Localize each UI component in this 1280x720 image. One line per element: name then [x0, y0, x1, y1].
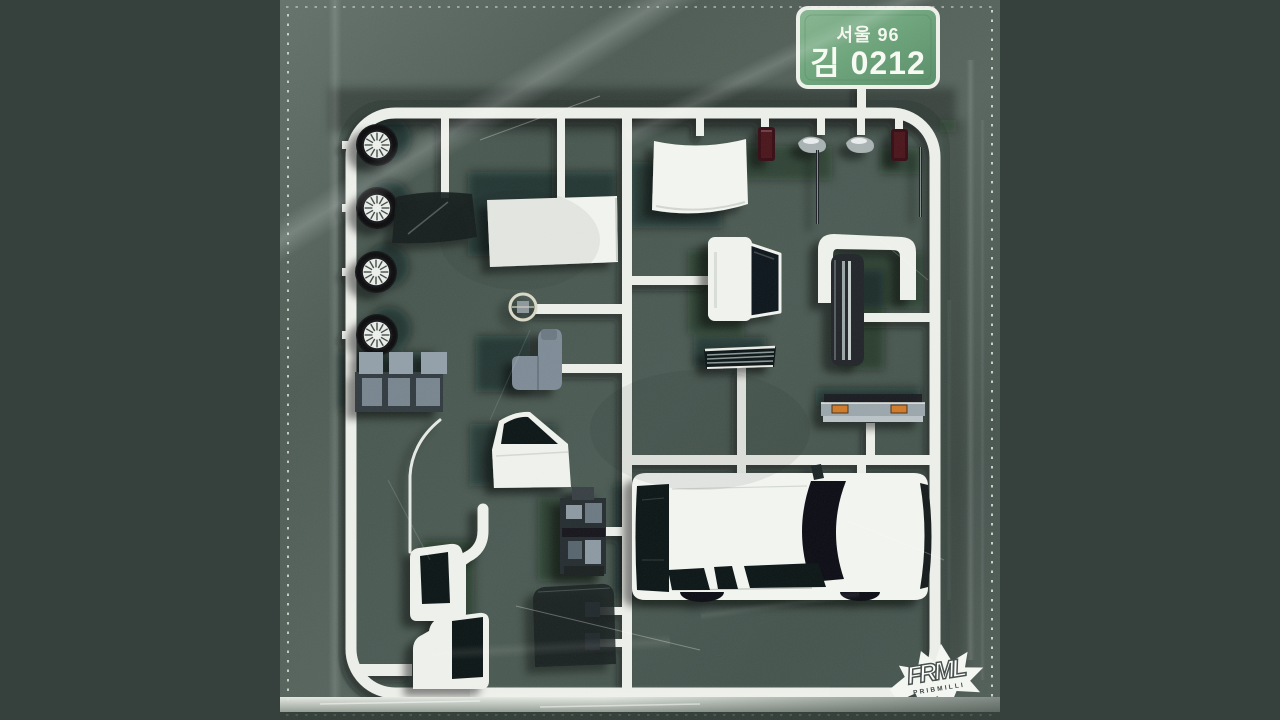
album-art-graphic: 서울 96 김 0212 FRML PRIBMILLI	[280, 0, 1000, 720]
grain-overlay	[280, 0, 1000, 720]
album-art: 서울 96 김 0212 FRML PRIBMILLI	[280, 0, 1000, 720]
video-frame: 서울 96 김 0212 FRML PRIBMILLI	[0, 0, 1280, 720]
